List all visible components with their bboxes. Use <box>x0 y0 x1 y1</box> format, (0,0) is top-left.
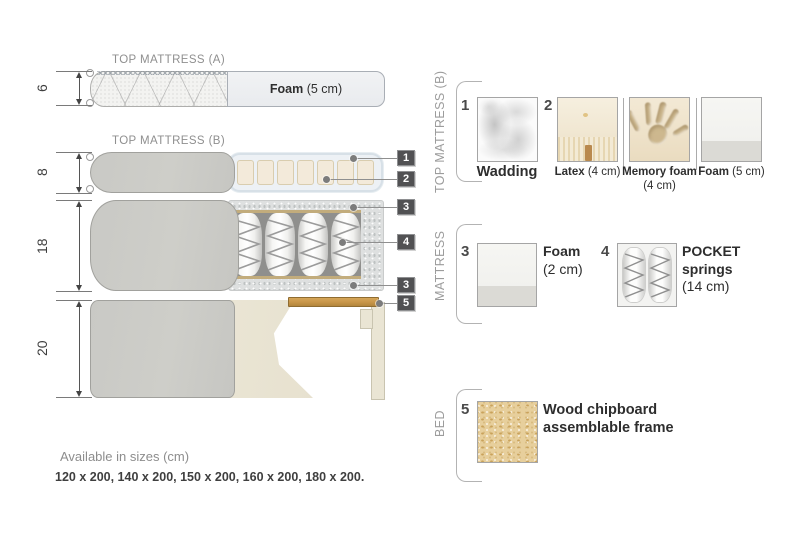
panel-divider <box>696 98 697 170</box>
hand-imprint-icon <box>630 97 689 159</box>
dim-tick <box>56 71 92 72</box>
item-number: 4 <box>601 243 609 260</box>
callout-3-top: 3 <box>397 199 415 215</box>
available-sizes-heading: Available in sizes (cm) <box>60 449 189 464</box>
item-number: 5 <box>461 401 469 418</box>
bed-frame-bracket <box>360 309 373 329</box>
pocket-springs-label: POCKET springs (14 cm) <box>682 243 754 296</box>
callout-2: 2 <box>397 171 415 187</box>
piping-dot <box>86 153 94 161</box>
panel-bed-title: BED <box>430 398 450 450</box>
top-mattress-b-title: TOP MATTRESS (B) <box>112 135 225 147</box>
dim-line <box>79 155 80 191</box>
arrow-up-icon <box>76 72 82 78</box>
arrow-up-icon <box>76 301 82 307</box>
leader-dot <box>376 300 383 307</box>
available-sizes-list: 120 x 200, 140 x 200, 150 x 200, 160 x 2… <box>55 470 364 484</box>
dim-tick <box>56 200 92 201</box>
wadding-label: Wadding <box>460 163 554 181</box>
mattress-drawing <box>90 200 383 291</box>
memory-foam-label: Memory foam (4 cm) <box>621 165 698 194</box>
spring-icon <box>265 213 295 276</box>
callout-3-bottom: 3 <box>397 277 415 293</box>
leader-line <box>343 242 397 243</box>
foam-image <box>701 97 762 162</box>
dim-label-20: 20 <box>34 333 50 363</box>
foam-label: Foam (5 cm) <box>270 82 342 96</box>
bed-fabric-drape <box>228 300 313 398</box>
dim-line <box>79 203 80 288</box>
leader-dot <box>350 282 357 289</box>
leader-dot <box>350 155 357 162</box>
bed-frame-post <box>371 302 385 400</box>
dim-tick <box>56 300 92 301</box>
foam-label: Foam (5 cm) <box>691 165 772 179</box>
top-mattress-a-drawing: Foam (5 cm) <box>90 71 383 105</box>
spring-icon <box>298 213 328 276</box>
latex-image <box>557 97 618 162</box>
stitch-zigzag <box>97 71 228 75</box>
leader-line <box>354 158 397 159</box>
dim-tick <box>56 105 92 106</box>
pocket-springs-image <box>617 243 677 307</box>
panel-top-mattress-b-title: TOP MATTRESS (B) <box>430 70 450 194</box>
memory-foam-image <box>629 97 690 162</box>
leader-dot <box>323 176 330 183</box>
latex-label: Latex (4 cm) <box>547 165 628 179</box>
mattress-construction-diagram: TOP MATTRESS (A) Foam (5 cm) 6 TOP MATTR… <box>0 0 800 533</box>
panel-divider <box>623 98 624 170</box>
top-mattress-a-title: TOP MATTRESS (A) <box>112 54 225 66</box>
dim-tick <box>56 152 92 153</box>
dim-tick <box>56 193 92 194</box>
piping-dot <box>86 185 94 193</box>
foam-2cm-label: Foam (2 cm) <box>543 243 595 278</box>
item-number: 1 <box>461 97 469 114</box>
foam-blocks <box>237 160 374 185</box>
callout-5: 5 <box>397 295 415 311</box>
spring-icon <box>331 213 361 276</box>
dim-tick <box>56 397 92 398</box>
quilted-layer <box>90 71 229 107</box>
wood-slat <box>288 297 379 307</box>
leader-dot <box>350 204 357 211</box>
spring-icon <box>649 248 671 301</box>
callout-4: 4 <box>397 234 415 250</box>
callout-1: 1 <box>397 150 415 166</box>
top-mattress-b-drawing <box>90 152 383 193</box>
dim-label-18: 18 <box>34 231 50 261</box>
fabric-cover <box>90 200 239 291</box>
leader-line <box>327 179 397 180</box>
arrow-down-icon <box>76 99 82 105</box>
wood-chipboard-image <box>477 401 538 463</box>
arrow-down-icon <box>76 285 82 291</box>
fabric-cover <box>90 300 235 398</box>
item-number: 2 <box>544 97 552 114</box>
dim-label-6: 6 <box>34 74 50 102</box>
arrow-up-icon <box>76 201 82 207</box>
wadding-image <box>477 97 538 162</box>
arrow-down-icon <box>76 391 82 397</box>
arrow-up-icon <box>76 153 82 159</box>
dim-tick <box>56 291 92 292</box>
leader-dot <box>339 239 346 246</box>
arrow-down-icon <box>76 187 82 193</box>
dim-label-8: 8 <box>34 158 50 186</box>
fabric-cover <box>90 152 235 193</box>
dim-line <box>79 303 80 394</box>
foam-layer: Foam (5 cm) <box>227 71 385 107</box>
spring-icon <box>623 248 645 301</box>
foam-2cm-image <box>477 243 537 307</box>
leader-line <box>354 285 397 286</box>
leader-line <box>354 207 397 208</box>
item-number: 3 <box>461 243 469 260</box>
panel-mattress-title: MATTRESS <box>430 216 450 316</box>
wood-chipboard-label: Wood chipboard assemblable frame <box>543 401 693 437</box>
